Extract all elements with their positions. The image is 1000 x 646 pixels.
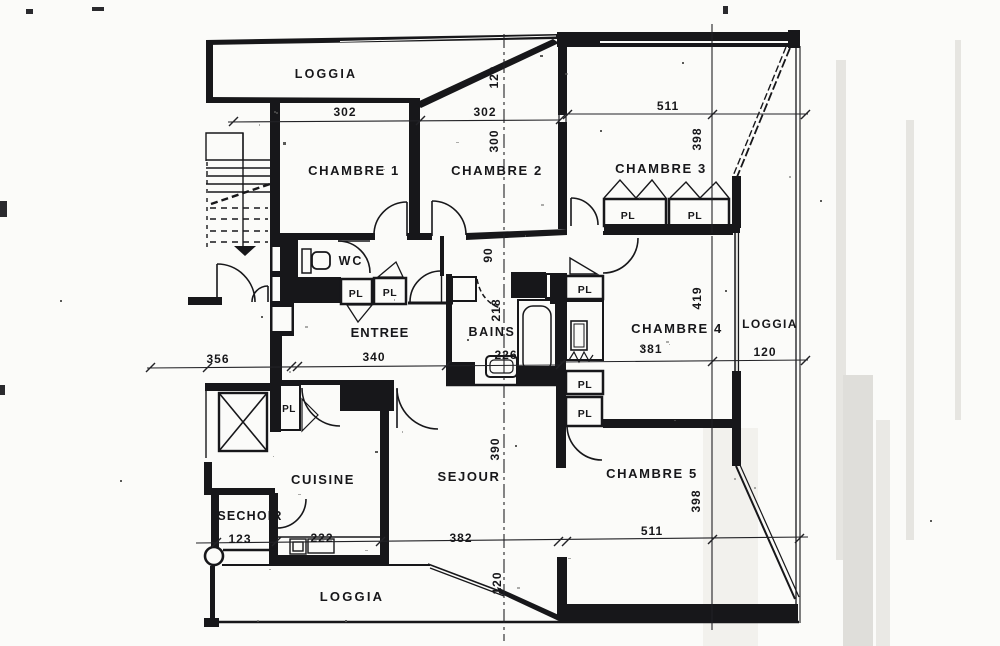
svg-text:340: 340 <box>362 350 385 364</box>
svg-text:300: 300 <box>487 129 501 152</box>
svg-text:LOGGIA: LOGGIA <box>742 317 798 331</box>
svg-text:419: 419 <box>690 286 704 309</box>
svg-text:511: 511 <box>657 99 679 113</box>
svg-text:PL: PL <box>349 288 364 300</box>
svg-text:PL: PL <box>688 210 703 222</box>
svg-text:120: 120 <box>490 571 504 594</box>
svg-text:382: 382 <box>449 531 472 545</box>
svg-text:CHAMBRE 2: CHAMBRE 2 <box>451 163 543 178</box>
svg-text:381: 381 <box>639 342 662 356</box>
svg-text:302: 302 <box>333 105 356 119</box>
svg-text:CUISINE: CUISINE <box>291 472 355 487</box>
svg-text:WC: WC <box>339 254 364 268</box>
svg-text:222: 222 <box>310 531 333 545</box>
svg-text:120: 120 <box>487 65 501 88</box>
svg-text:511: 511 <box>641 524 663 538</box>
svg-text:CHAMBRE 5: CHAMBRE 5 <box>606 466 698 481</box>
svg-text:PL: PL <box>578 379 593 391</box>
svg-text:PL: PL <box>383 287 398 299</box>
svg-text:LOGGIA: LOGGIA <box>320 589 384 604</box>
svg-text:120: 120 <box>753 345 776 359</box>
svg-text:SEJOUR: SEJOUR <box>437 469 500 484</box>
svg-text:PL: PL <box>282 404 296 415</box>
svg-text:302: 302 <box>473 105 496 119</box>
svg-text:398: 398 <box>690 127 704 150</box>
svg-text:BAINS: BAINS <box>469 325 516 339</box>
svg-text:PL: PL <box>578 284 593 296</box>
svg-text:123: 123 <box>228 532 251 546</box>
svg-text:398: 398 <box>689 489 703 512</box>
svg-text:SECHOIR: SECHOIR <box>217 509 282 523</box>
svg-text:90: 90 <box>481 247 495 262</box>
svg-text:226: 226 <box>494 348 517 362</box>
svg-text:CHAMBRE 4: CHAMBRE 4 <box>631 321 723 336</box>
svg-text:CHAMBRE 1: CHAMBRE 1 <box>308 163 400 178</box>
svg-text:LOGGIA: LOGGIA <box>295 67 358 81</box>
svg-text:ENTREE: ENTREE <box>351 325 410 340</box>
svg-text:390: 390 <box>488 437 502 460</box>
svg-text:356: 356 <box>206 352 229 366</box>
svg-text:218: 218 <box>489 298 503 321</box>
svg-text:PL: PL <box>621 210 636 222</box>
svg-text:PL: PL <box>578 408 593 420</box>
svg-text:CHAMBRE 3: CHAMBRE 3 <box>615 161 707 176</box>
